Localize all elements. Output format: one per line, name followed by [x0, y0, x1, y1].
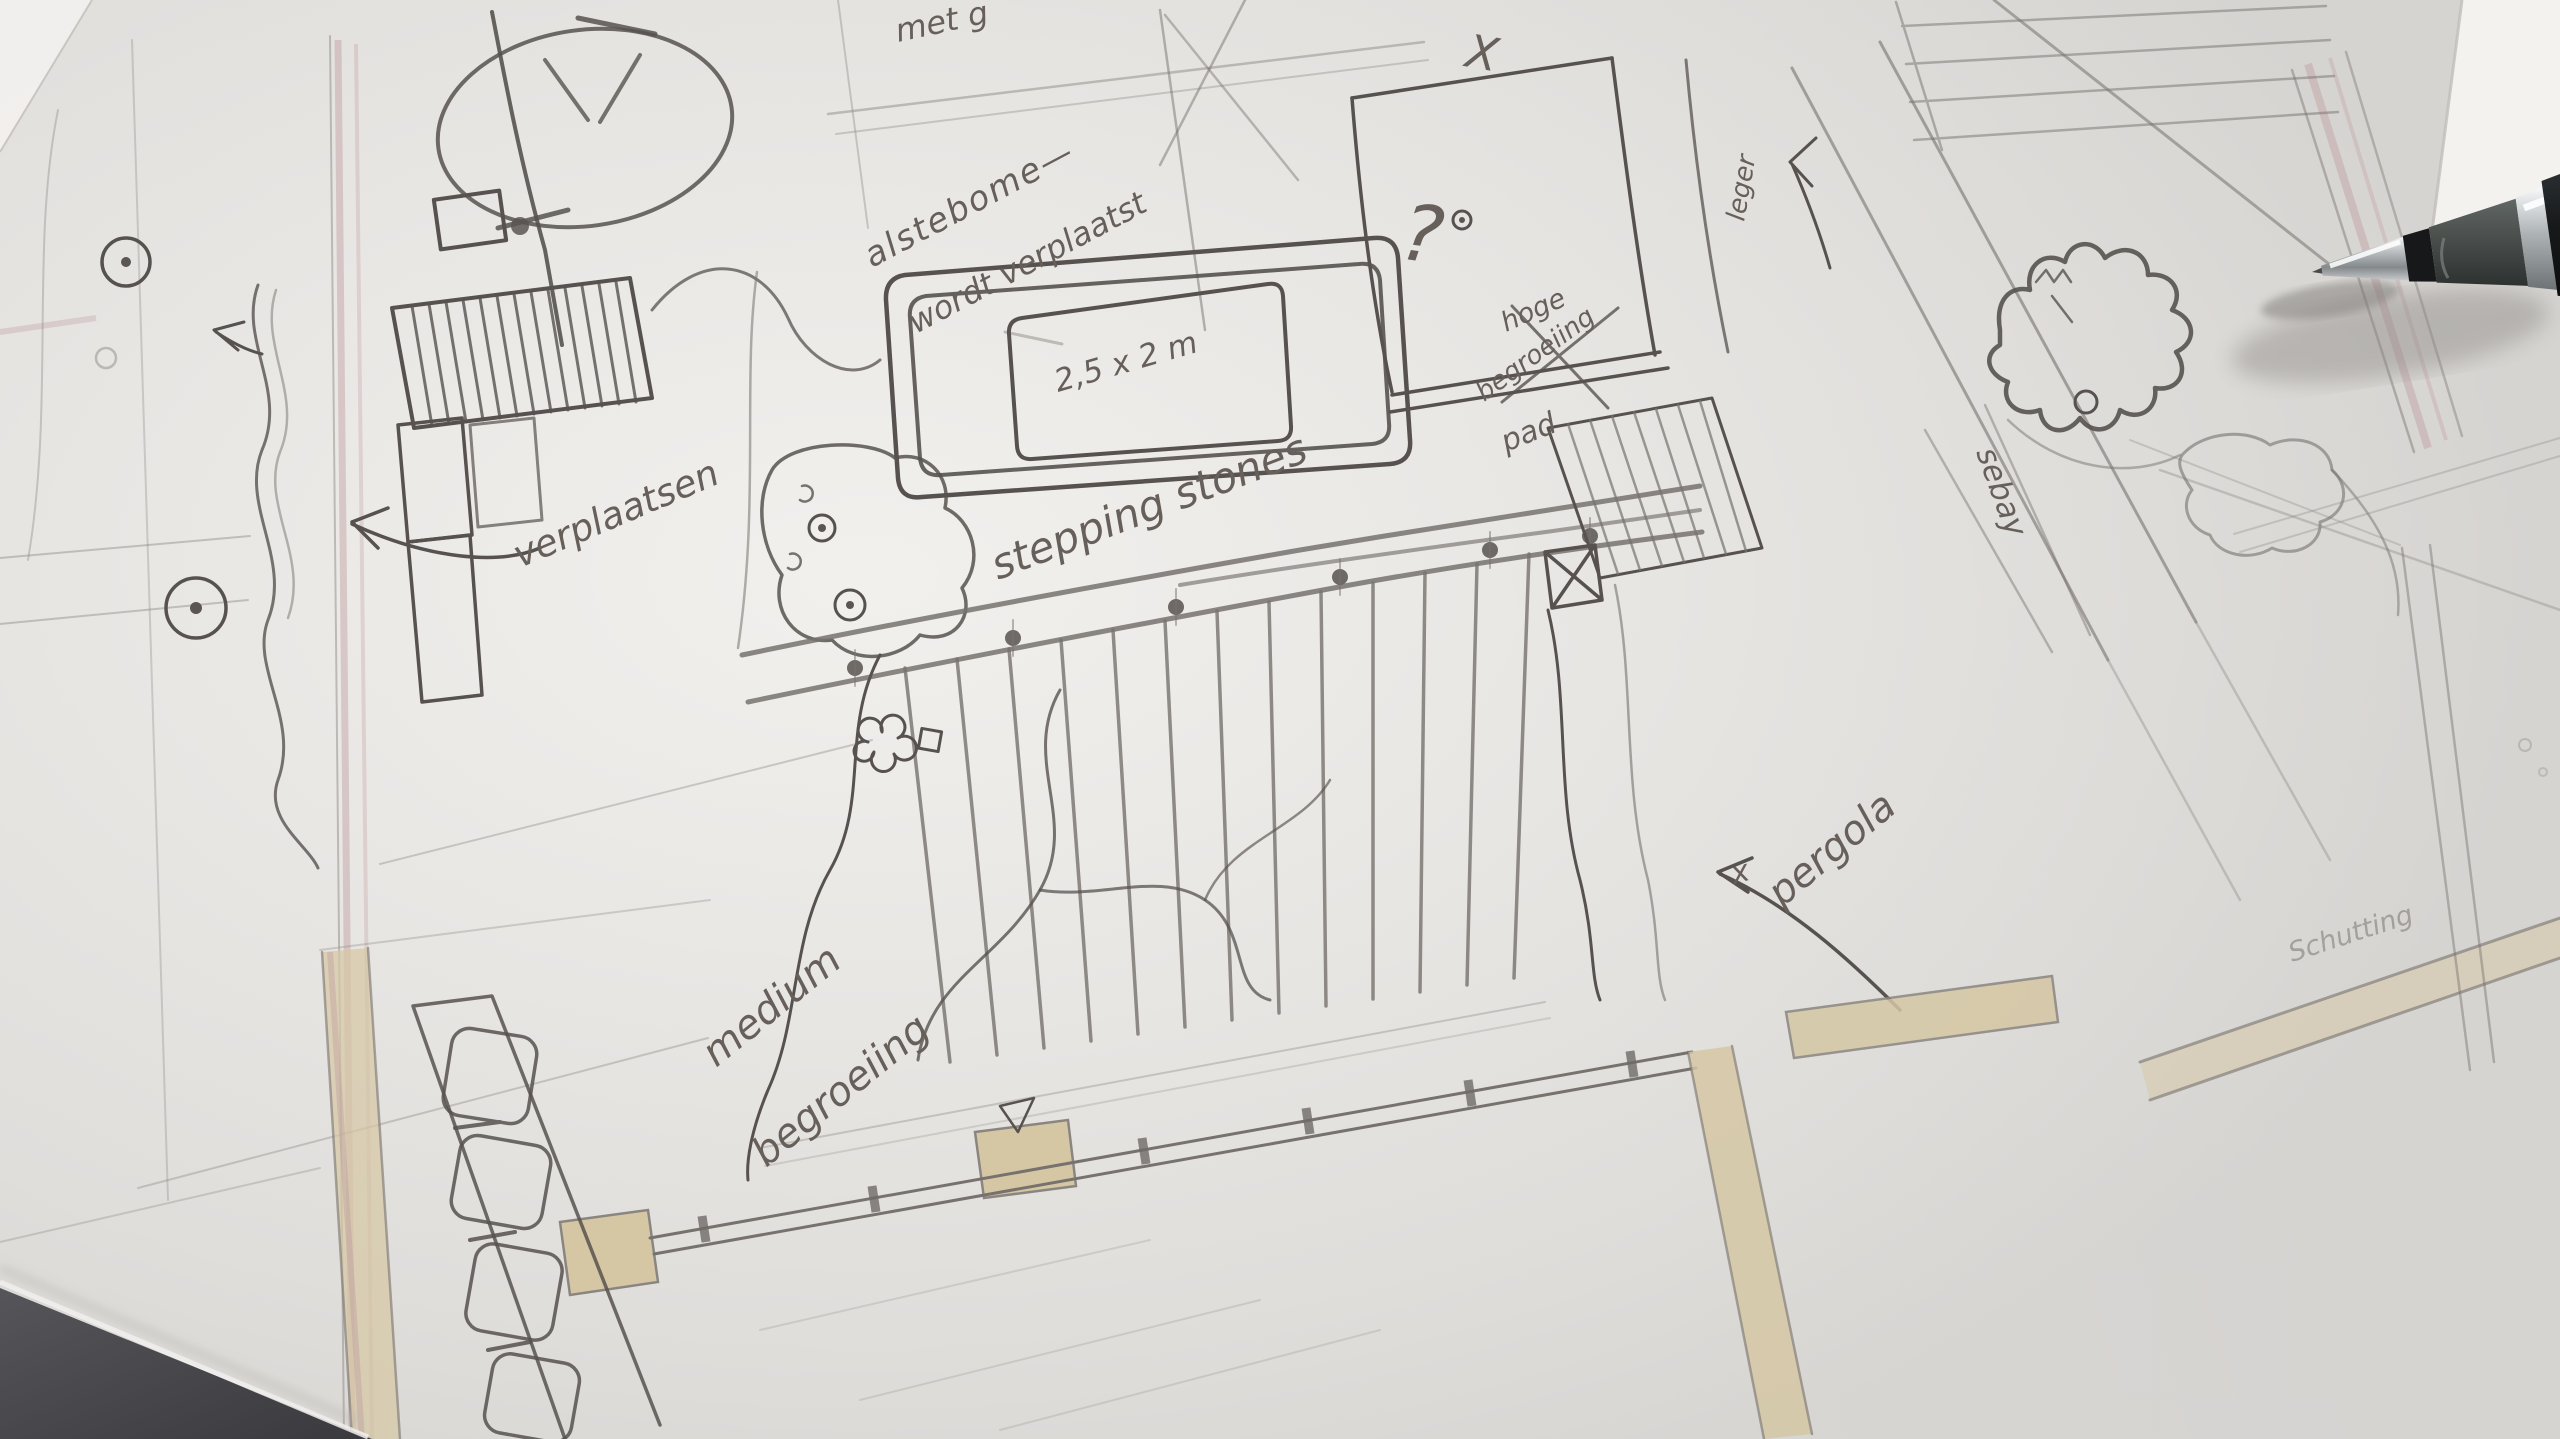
pink-wall-line-top-left [0, 318, 96, 332]
amoeba-blob [2180, 434, 2344, 555]
note-terrace-size: 2,5 x 2 m [1050, 325, 1201, 400]
note-pergola: pergola [1758, 783, 1905, 917]
stem-node-dot [511, 217, 529, 235]
note-medium-planting-line1: medium [693, 937, 850, 1076]
shrub-dot-2 [190, 602, 202, 614]
vine-squiggle-2 [1040, 886, 1270, 1000]
tree-circle-symbol [425, 10, 745, 245]
cross-mark-symbol: X [1460, 23, 1504, 82]
floor-reflection-lines [760, 1240, 1380, 1430]
note-shed: Schutting [2285, 899, 2417, 968]
right-path-line-2 [1880, 42, 2196, 622]
wall-top-horizontal [1786, 976, 2058, 1058]
pergola-right-boundary [1548, 610, 1600, 1000]
glass-facade-double-line [650, 1052, 1696, 1254]
storage-box-1 [398, 418, 472, 542]
small-scallop-blob [854, 715, 916, 771]
bed-right-edge [1612, 58, 1655, 355]
stairs-grid-lines [1896, 2, 2338, 150]
storage-box-3 [470, 418, 542, 527]
pergola-right-boundary-2 [1615, 585, 1665, 1000]
connector-squiggle [652, 269, 880, 370]
deck-outline [392, 278, 652, 428]
up-arrow-right-strip [1790, 138, 1830, 268]
tiny-square-marker [918, 728, 941, 751]
house-plan-walls [322, 438, 2560, 1439]
storage-box-2 [408, 535, 482, 702]
shrub-circle-3 [96, 348, 116, 368]
pergola-slats [905, 554, 1529, 1062]
question-mark-symbol: ? [1395, 188, 1449, 283]
wall-right-vertical [1688, 1046, 1812, 1439]
center-left-boundary [738, 272, 757, 648]
bed-edge-wavy-line-2 [272, 290, 294, 618]
leaf-plant-symbol [1989, 244, 2191, 430]
right-bed-and-path [1352, 0, 2560, 900]
wall-pier-1 [560, 1210, 658, 1295]
deck-hatching [412, 282, 636, 426]
note-right-edge: leger [1721, 150, 1762, 223]
bush-blob [762, 445, 974, 657]
handwritten-annotations: met g alstebome— wordt verplaatst 2,5 x … [507, 0, 2417, 1176]
shrub-dot-1 [121, 257, 131, 267]
stones-path-top-line [742, 486, 1700, 655]
note-top-cutoff: met g [892, 0, 992, 50]
bed-outer-wavy [1686, 60, 1728, 352]
bed-edge-wavy-line [253, 285, 318, 868]
note-path: pad [1495, 405, 1562, 459]
top-left-plant-and-deck [96, 10, 880, 868]
photo-of-garden-plan-sketch: met g alstebome— wordt verplaatst 2,5 x … [0, 0, 2560, 1439]
sketch-canvas: met g alstebome— wordt verplaatst 2,5 x … [0, 0, 2560, 1439]
tile-strip-outline [1548, 398, 1762, 578]
